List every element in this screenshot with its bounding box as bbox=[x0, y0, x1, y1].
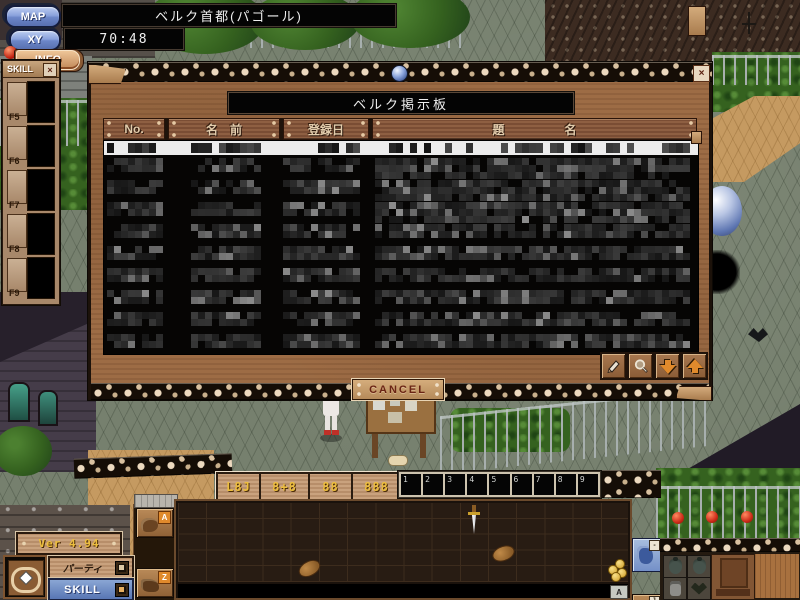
coin bbox=[611, 572, 621, 582]
cancel-button[interactable]: CANCEL bbox=[352, 379, 444, 400]
char-body bbox=[323, 398, 339, 416]
hotbar-slot-number: 7 bbox=[536, 475, 541, 484]
hotbar-slot-number: 6 bbox=[514, 475, 519, 484]
status-cell-defense: 8+8 bbox=[261, 474, 310, 499]
hotbar-slot-number: 5 bbox=[491, 475, 496, 484]
column-header-subject[interactable]: 題 名 bbox=[372, 118, 697, 140]
status-cell-people: 88 bbox=[310, 474, 353, 499]
pet-panel-frame bbox=[720, 558, 748, 588]
pencil-icon bbox=[606, 358, 622, 374]
skill-toggle[interactable] bbox=[115, 583, 129, 597]
bat-icon bbox=[691, 583, 707, 595]
item-coins[interactable] bbox=[608, 559, 626, 581]
hotbar-slot-number: 2 bbox=[425, 475, 430, 484]
dialog-title-bar: ベルク掲示板 bbox=[228, 92, 574, 114]
char-shoe bbox=[324, 430, 331, 435]
char-leg bbox=[325, 416, 330, 431]
hotbar-slot-number: 3 bbox=[447, 475, 452, 484]
bag-crate-top bbox=[134, 494, 178, 508]
game-screen: MAP ベルク首都(パゴール) XY 70:48 INFO SKILL × F5… bbox=[0, 0, 800, 600]
bag-tab-z[interactable]: Z bbox=[136, 568, 174, 598]
emote-button[interactable] bbox=[3, 555, 47, 599]
right-panel-ornament bbox=[660, 538, 800, 552]
scroll-down-button[interactable] bbox=[654, 352, 681, 380]
summon-slot[interactable] bbox=[687, 577, 711, 600]
money-bag-icon bbox=[669, 559, 682, 574]
skill-slot-f8[interactable]: F8 bbox=[6, 212, 56, 256]
bag-tag-label: A bbox=[616, 588, 622, 597]
bag-tab-a[interactable]: A bbox=[136, 508, 174, 538]
magnifier-icon bbox=[633, 358, 649, 374]
summon-slot[interactable] bbox=[663, 577, 687, 600]
item-dagger[interactable] bbox=[468, 505, 480, 535]
skill-slot-icon-box bbox=[27, 257, 55, 299]
red-orb bbox=[706, 511, 718, 523]
location-text: ベルク首都(パゴール) bbox=[155, 6, 303, 25]
bag-tab-key: A bbox=[158, 511, 171, 524]
dagger-blade bbox=[472, 515, 476, 534]
dialog-title: ベルク掲示板 bbox=[353, 94, 449, 113]
party-toggle[interactable] bbox=[115, 561, 129, 575]
map-button-label: MAP bbox=[21, 11, 45, 23]
hud-ornament-right bbox=[601, 470, 661, 498]
status-bar: L8J 8+8 88 888 bbox=[216, 472, 402, 501]
skill-panel-close-button[interactable]: × bbox=[43, 63, 57, 77]
hotbar-slot-number: 9 bbox=[580, 475, 585, 484]
item-bread[interactable] bbox=[490, 543, 517, 565]
stand-paper bbox=[388, 412, 402, 423]
bag-tag-box[interactable]: A bbox=[610, 585, 628, 599]
fence-right bbox=[712, 55, 800, 85]
ground-item-bone[interactable] bbox=[388, 455, 408, 466]
char-shoe bbox=[332, 430, 339, 435]
stained-glass-window bbox=[8, 382, 30, 422]
golem-icon bbox=[670, 581, 681, 596]
write-post-button[interactable] bbox=[600, 352, 627, 380]
up-arrow-icon bbox=[687, 359, 703, 374]
item-bread[interactable] bbox=[296, 556, 323, 580]
skill-slot-pad bbox=[7, 82, 27, 116]
column-header-label: No. bbox=[124, 122, 143, 136]
status-cell-gold: 888 bbox=[353, 474, 400, 499]
hotbar-slot-2[interactable]: 2 bbox=[423, 474, 443, 495]
char-leg bbox=[332, 416, 337, 431]
bird bbox=[748, 328, 768, 342]
hotbar-slot-8[interactable]: 8 bbox=[556, 474, 576, 495]
summon-slot[interactable] bbox=[687, 555, 711, 578]
skill-slot-pad bbox=[7, 170, 27, 204]
party-button-label: パーティ bbox=[50, 560, 115, 575]
summon-slot[interactable] bbox=[663, 555, 687, 578]
skill-slot-icon-box bbox=[27, 81, 55, 123]
board-scroll-nub[interactable] bbox=[691, 131, 702, 144]
bag-tab-key: Z bbox=[158, 571, 171, 584]
version-plaque: Ver 4.94 bbox=[16, 532, 122, 555]
close-icon: × bbox=[47, 65, 52, 75]
char-shadow bbox=[320, 434, 342, 442]
game-time-bar: 70:48 bbox=[64, 28, 184, 50]
dialog-close-button[interactable]: × bbox=[693, 65, 710, 82]
gem-icon bbox=[391, 65, 408, 82]
weathervane-icon bbox=[742, 12, 756, 34]
game-time: 70:48 bbox=[99, 32, 148, 47]
column-header-name[interactable]: 名 前 bbox=[168, 118, 280, 140]
stained-glass-window bbox=[38, 390, 58, 426]
location-bar: ベルク首都(パゴール) bbox=[62, 4, 396, 27]
hotbar-slot-9[interactable]: 9 bbox=[578, 474, 598, 495]
column-header-label: 名 前 bbox=[206, 121, 242, 138]
hotbar-slot-7[interactable]: 7 bbox=[534, 474, 554, 495]
hotbar-slot-number: 4 bbox=[469, 475, 474, 484]
column-header-label: 題 名 bbox=[492, 121, 576, 138]
view-post-button[interactable] bbox=[627, 352, 654, 380]
bag-tab-icon bbox=[141, 518, 158, 532]
skill-slot-key: F9 bbox=[9, 288, 20, 298]
hotbar-slot-3[interactable]: 3 bbox=[445, 474, 465, 495]
hotbar-slot-number: 8 bbox=[558, 475, 563, 484]
skill-slot-key: F6 bbox=[9, 156, 20, 166]
side-button-magic[interactable]: - bbox=[632, 538, 662, 572]
bulletin-board-dialog: × ベルク掲示板 No. 名 前 登録日 題 名 CANCEL bbox=[88, 62, 712, 400]
xy-button[interactable]: XY bbox=[9, 29, 61, 51]
status-cell-level: L8J bbox=[218, 474, 261, 499]
skill-slot-f7[interactable]: F7 bbox=[6, 168, 56, 212]
hotbar-slot-1[interactable]: 1 bbox=[401, 474, 421, 495]
hotbar-slot-5[interactable]: 5 bbox=[489, 474, 509, 495]
board-post-list-censored[interactable] bbox=[103, 140, 699, 355]
money-bag-icon bbox=[693, 559, 706, 574]
skill-slot-icon-box bbox=[27, 213, 55, 255]
cancel-button-label: CANCEL bbox=[369, 384, 427, 396]
skill-slot-f6[interactable]: F6 bbox=[6, 124, 56, 168]
fence-center bbox=[440, 388, 710, 474]
right-panel bbox=[660, 552, 800, 600]
inventory-window: A bbox=[174, 499, 632, 600]
status-value: L8J bbox=[226, 480, 251, 494]
skill-slot-pad bbox=[7, 126, 27, 160]
map-button[interactable]: MAP bbox=[5, 5, 61, 28]
skill-slot-pad bbox=[7, 258, 27, 292]
pet-panel-bar bbox=[716, 589, 750, 596]
xy-button-label: XY bbox=[28, 34, 43, 46]
skill-slot-key: F5 bbox=[9, 112, 20, 122]
column-header-no[interactable]: No. bbox=[103, 118, 165, 140]
chimney bbox=[688, 6, 706, 36]
dagger-guard bbox=[468, 512, 480, 515]
skill-slot-icon-box bbox=[27, 125, 55, 167]
hotbar: 1 2 3 4 5 6 7 8 9 bbox=[398, 471, 601, 498]
bag-tab-icon bbox=[141, 579, 159, 592]
skill-panel-title: SKILL bbox=[7, 64, 33, 74]
skill-slot-pad bbox=[7, 214, 27, 248]
column-header-date[interactable]: 登録日 bbox=[283, 118, 369, 140]
red-orb bbox=[672, 512, 684, 524]
status-value: 88 bbox=[322, 480, 338, 494]
skill-panel: SKILL × F5 F6 F7 F8 F9 bbox=[2, 60, 60, 305]
side-button-equip[interactable]: ] bbox=[632, 594, 662, 600]
skill-slot-f9[interactable]: F9 bbox=[6, 256, 56, 300]
hotbar-slot-4[interactable]: 4 bbox=[467, 474, 487, 495]
skill-slot-icon-box bbox=[27, 169, 55, 211]
red-orb bbox=[741, 511, 753, 523]
hotbar-slot-number: 1 bbox=[403, 475, 408, 484]
hotbar-slot-6[interactable]: 6 bbox=[512, 474, 532, 495]
skill-slot-key: F7 bbox=[9, 200, 20, 210]
column-header-label: 登録日 bbox=[308, 121, 344, 138]
emote-button-inner bbox=[8, 560, 44, 596]
down-arrow-icon bbox=[660, 359, 676, 374]
skill-slot-f5[interactable]: F5 bbox=[6, 80, 56, 124]
wood-filler-panel bbox=[755, 554, 799, 598]
status-value: 8+8 bbox=[272, 480, 297, 494]
skill-bar-button[interactable]: SKILL bbox=[48, 578, 134, 600]
pet-panel[interactable] bbox=[711, 554, 755, 600]
side-button-key: ] bbox=[649, 596, 660, 600]
skill-bar-label: SKILL bbox=[50, 584, 115, 596]
board-header-row: No. 名 前 登録日 題 名 bbox=[103, 118, 697, 140]
inventory-message-bar bbox=[178, 584, 628, 598]
skill-slot-key: F8 bbox=[9, 244, 20, 254]
version-text: Ver 4.94 bbox=[39, 537, 100, 550]
party-button[interactable]: パーティ bbox=[48, 556, 134, 579]
close-icon: × bbox=[699, 68, 705, 79]
scroll-up-button[interactable] bbox=[681, 352, 708, 380]
inventory-grid[interactable] bbox=[178, 503, 628, 582]
status-value: 888 bbox=[364, 480, 389, 494]
side-button-key: - bbox=[649, 540, 660, 551]
